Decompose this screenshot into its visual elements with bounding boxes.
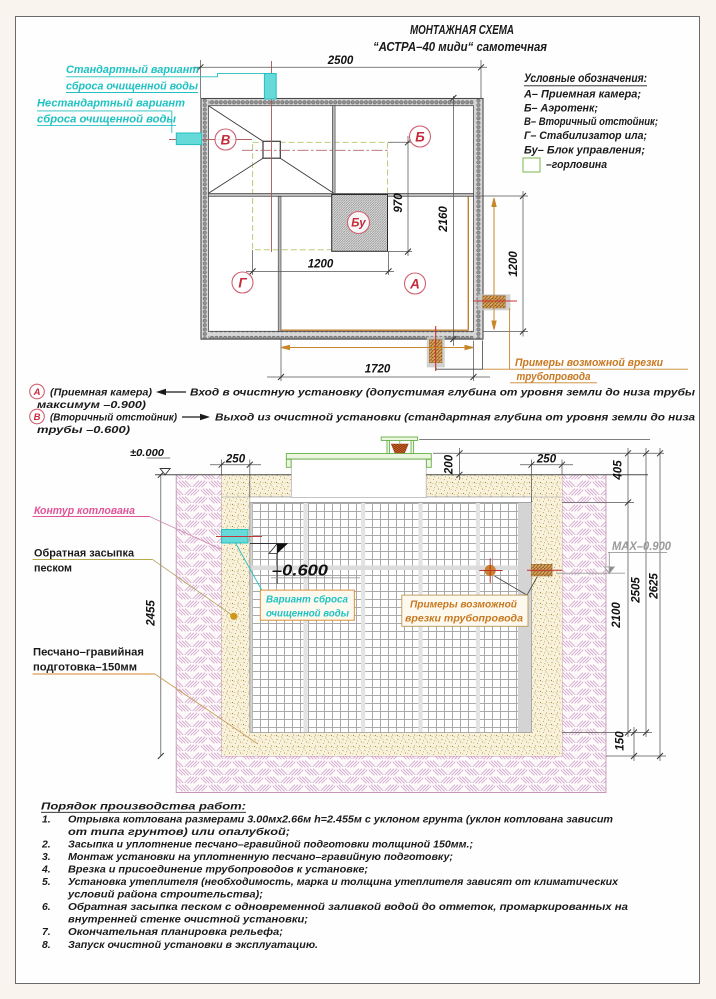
svg-text:МАХ–0.900: МАХ–0.900 bbox=[612, 539, 671, 553]
svg-text:Вариант сброса: Вариант сброса bbox=[266, 594, 348, 606]
svg-text:Окончательная планировка релье: Окончательная планировка рельефа; bbox=[68, 926, 283, 938]
svg-text:максимум –0.900): максимум –0.900) bbox=[37, 400, 147, 411]
svg-text:2.: 2. bbox=[41, 839, 51, 850]
svg-text:песком: песком bbox=[34, 563, 72, 575]
svg-text:“АСТРА–40 миди“ самотечная: “АСТРА–40 миди“ самотечная bbox=[373, 40, 548, 54]
svg-text:Г: Г bbox=[238, 275, 247, 290]
svg-text:Г– Стабилизатор ила;: Г– Стабилизатор ила; bbox=[524, 130, 647, 142]
svg-text:1.: 1. bbox=[42, 814, 51, 825]
svg-text:Контур котлована: Контур котлована bbox=[34, 505, 135, 517]
svg-text:Порядок производства работ:: Порядок производства работ: bbox=[41, 801, 246, 813]
svg-text:1200: 1200 bbox=[508, 251, 520, 277]
svg-text:Бу– Блок управления;: Бу– Блок управления; bbox=[524, 145, 645, 157]
svg-text:В– Вторичный отстойник;: В– Вторичный отстойник; bbox=[524, 116, 658, 128]
svg-text:Бу: Бу bbox=[351, 218, 366, 230]
svg-text:405: 405 bbox=[613, 460, 625, 481]
svg-text:В: В bbox=[34, 412, 41, 423]
svg-text:Засыпка и уплотнение песчано–г: Засыпка и уплотнение песчано–гравийной п… bbox=[68, 839, 473, 850]
svg-text:Запуск очистной установки в эк: Запуск очистной установки в эксплуатацию… bbox=[68, 940, 318, 951]
svg-text:7.: 7. bbox=[42, 927, 51, 938]
svg-text:Нестандартный вариант: Нестандартный вариант bbox=[37, 98, 185, 110]
svg-text:–горловина: –горловина bbox=[546, 159, 607, 171]
svg-text:А: А bbox=[409, 276, 420, 291]
svg-text:Обратная засыпка песком с одно: Обратная засыпка песком с одновременной … bbox=[68, 901, 628, 913]
svg-text:3.: 3. bbox=[42, 852, 51, 863]
svg-text:1200: 1200 bbox=[308, 259, 334, 271]
svg-text:Б: Б bbox=[415, 129, 425, 144]
svg-text:Примеры возможной врезки: Примеры возможной врезки bbox=[515, 357, 663, 369]
svg-text:В: В bbox=[221, 132, 231, 147]
svg-text:подготовка–150мм: подготовка–150мм bbox=[33, 662, 137, 674]
svg-text:сброса очищенной воды: сброса очищенной воды bbox=[66, 81, 199, 93]
svg-text:250: 250 bbox=[536, 454, 557, 466]
svg-text:970: 970 bbox=[393, 193, 405, 213]
svg-text:Стандартный вариант: Стандартный вариант bbox=[66, 64, 199, 76]
svg-text:МОНТАЖНАЯ СХЕМА: МОНТАЖНАЯ СХЕМА bbox=[410, 23, 514, 37]
svg-text:Монтаж установки на уплотненну: Монтаж установки на уплотненную песчано–… bbox=[68, 852, 453, 863]
svg-text:150: 150 bbox=[615, 731, 627, 751]
svg-text:2455: 2455 bbox=[146, 600, 158, 627]
svg-text:Врезка и присоединение трубопр: Врезка и присоединение трубопроводов к у… bbox=[68, 864, 368, 876]
svg-text:А– Приемная камера;: А– Приемная камера; bbox=[523, 89, 641, 101]
svg-text:трубы –0.600): трубы –0.600) bbox=[37, 424, 131, 436]
svg-text:±0.000: ±0.000 bbox=[130, 447, 164, 459]
svg-text:2160: 2160 bbox=[438, 206, 450, 233]
svg-text:трубопровода: трубопровода bbox=[517, 371, 591, 383]
svg-text:очищенной воды: очищенной воды bbox=[266, 608, 349, 620]
svg-text:1720: 1720 bbox=[365, 364, 391, 376]
svg-text:Выход из очистной установки (с: Выход из очистной установки (стандартная… bbox=[215, 412, 695, 424]
svg-text:2100: 2100 bbox=[611, 602, 623, 629]
svg-text:внутренней стенке очистной уст: внутренней стенке очистной установки; bbox=[68, 915, 308, 926]
svg-text:А: А bbox=[33, 387, 41, 398]
svg-text:2505: 2505 bbox=[631, 577, 643, 604]
svg-text:условий района строительства);: условий района строительства); bbox=[67, 890, 263, 901]
svg-text:(Приемная камера): (Приемная камера) bbox=[50, 388, 153, 399]
svg-text:200: 200 bbox=[444, 454, 456, 475]
svg-text:5.: 5. bbox=[42, 877, 51, 888]
svg-text:Примеры возможной: Примеры возможной bbox=[410, 599, 518, 611]
svg-text:Установка утеплителя (необходи: Установка утеплителя (необходимость, мар… bbox=[68, 876, 619, 888]
svg-text:250: 250 bbox=[225, 454, 246, 466]
svg-text:2500: 2500 bbox=[327, 55, 354, 67]
svg-text:Б– Аэротенк;: Б– Аэротенк; bbox=[524, 103, 598, 115]
svg-text:8.: 8. bbox=[42, 940, 51, 951]
svg-text:–0.600: –0.600 bbox=[272, 563, 328, 580]
svg-text:сброса очищенной воды: сброса очищенной воды bbox=[37, 114, 177, 126]
svg-text:2625: 2625 bbox=[649, 573, 661, 600]
svg-text:Отрывка котлована размерами 3.: Отрывка котлована размерами 3.00мх2.66м … bbox=[68, 814, 613, 825]
svg-text:врезки трубопровода: врезки трубопровода bbox=[405, 613, 523, 625]
svg-text:Условные обозначения:: Условные обозначения: bbox=[524, 73, 647, 85]
svg-text:4.: 4. bbox=[41, 865, 51, 876]
svg-text:6.: 6. bbox=[42, 902, 51, 913]
svg-text:Обратная засыпка: Обратная засыпка bbox=[34, 548, 135, 560]
svg-text:Вход в очистную установку (доп: Вход в очистную установку (допустимая гл… bbox=[190, 387, 695, 399]
svg-text:(Вторичный отстойник): (Вторичный отстойник) bbox=[50, 413, 178, 424]
svg-text:Песчано–гравийная: Песчано–гравийная bbox=[33, 647, 144, 659]
svg-text:от типа грунтов) или опалубкой: от типа грунтов) или опалубкой; bbox=[68, 826, 290, 838]
